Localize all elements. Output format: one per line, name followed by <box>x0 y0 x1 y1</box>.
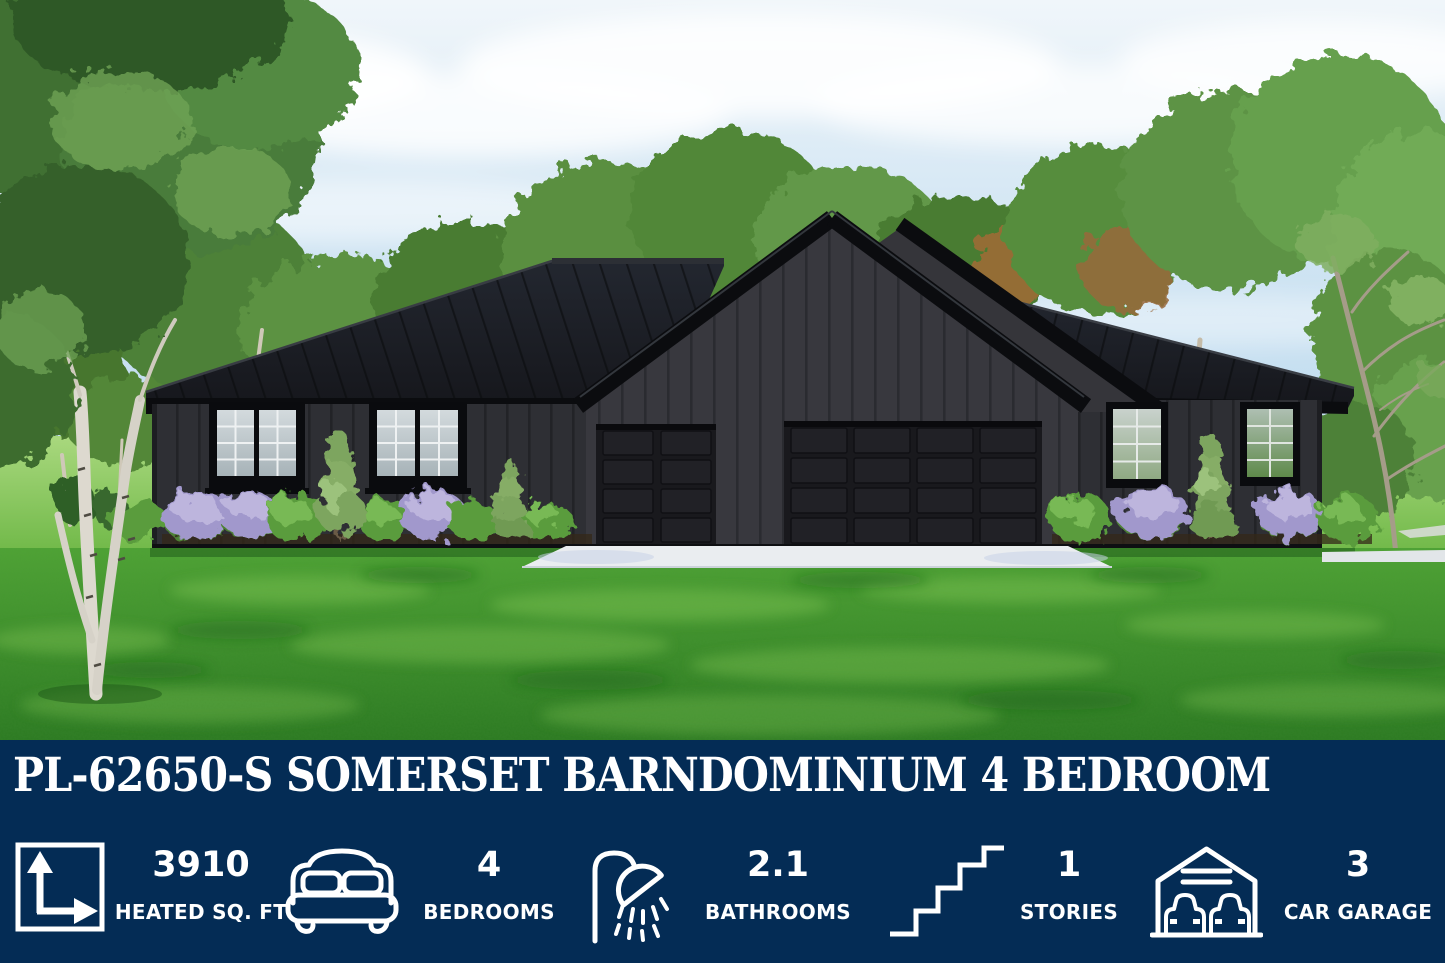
heated-sqft-label: HEATED SQ. FT <box>115 900 287 924</box>
shower-icon <box>585 841 680 945</box>
plan-title: PL-62650-S SOMERSET BARNDOMINIUM 4 BEDRO… <box>13 748 1270 803</box>
bedrooms-label: BEDROOMS <box>423 900 555 924</box>
stat-stories: 1 STORIES <box>886 841 1116 937</box>
garage-icon <box>1150 841 1263 938</box>
info-banner: PL-62650-S SOMERSET BARNDOMINIUM 4 BEDRO… <box>0 740 1445 963</box>
window-pair-b <box>365 402 471 494</box>
car-garage-label: CAR GARAGE <box>1284 900 1432 924</box>
window-pair-a <box>205 402 309 494</box>
double-garage-door <box>784 421 1042 546</box>
window-c <box>1106 402 1168 488</box>
driveway <box>522 546 1112 567</box>
single-garage-door <box>596 424 716 546</box>
window-d <box>1240 402 1300 486</box>
floor-area-icon <box>14 841 106 933</box>
bathrooms-value: 2.1 <box>747 848 809 883</box>
heated-sqft-value: 3910 <box>152 848 249 883</box>
house-plan-promo: PL-62650-S SOMERSET BARNDOMINIUM 4 BEDRO… <box>0 0 1445 963</box>
stairs-icon <box>886 841 1008 937</box>
bedrooms-value: 4 <box>477 848 501 883</box>
sidewalk <box>1322 550 1445 562</box>
exterior-rendering <box>0 0 1445 740</box>
bed-icon <box>283 841 401 937</box>
stories-value: 1 <box>1057 848 1081 883</box>
stat-bathrooms: 2.1 BATHROOMS <box>585 841 846 945</box>
stories-label: STORIES <box>1020 900 1118 924</box>
car-garage-value: 3 <box>1346 848 1370 883</box>
stat-car-garage: 3 CAR GARAGE <box>1150 841 1429 938</box>
rendering-canvas <box>0 0 1445 740</box>
bathrooms-label: BATHROOMS <box>705 900 851 924</box>
stat-bedrooms: 4 BEDROOMS <box>283 841 551 937</box>
stat-heated-sqft: 3910 HEATED SQ. FT <box>14 841 276 933</box>
